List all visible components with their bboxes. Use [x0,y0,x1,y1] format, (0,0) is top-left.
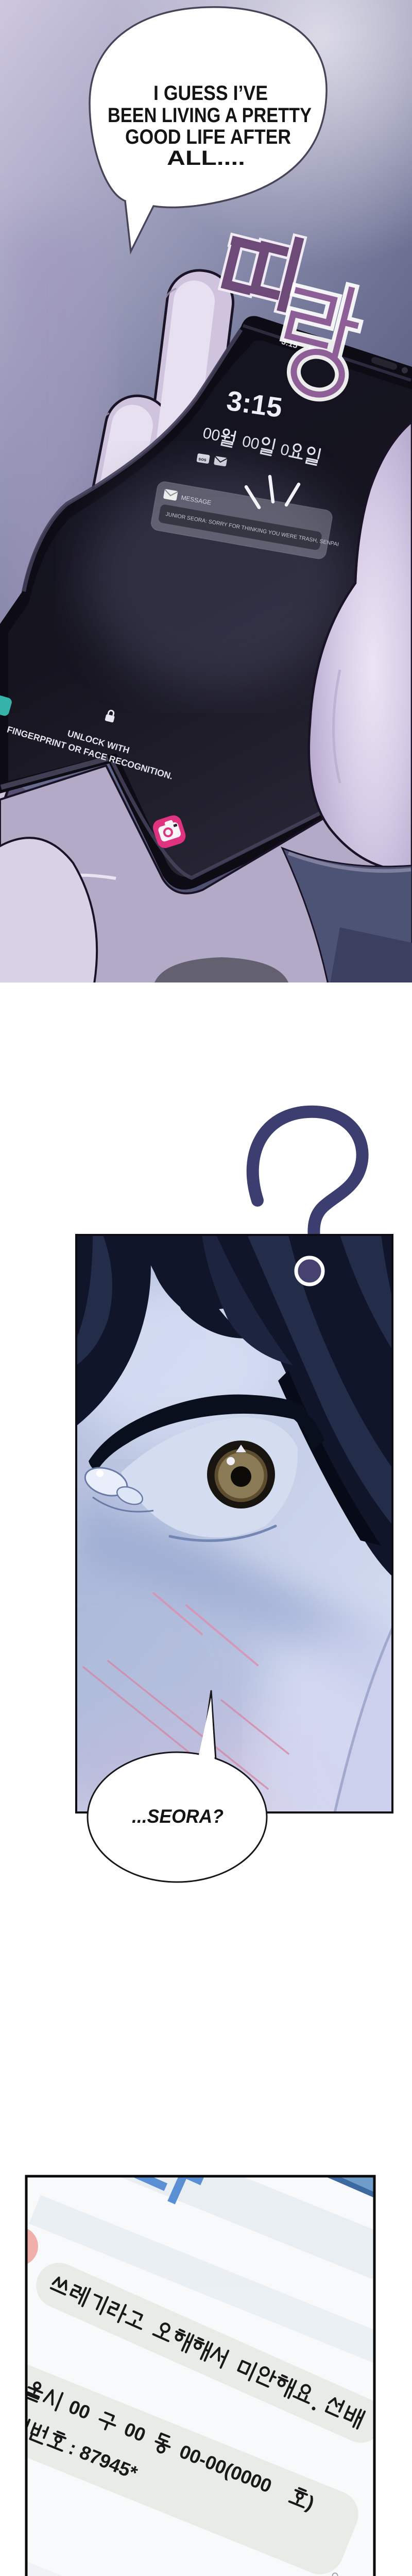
svg-text:...SEORA?: ...SEORA? [132,1806,224,1827]
svg-text:00: 00 [241,433,261,453]
svg-text:00: 00 [201,425,222,445]
svg-text:I GUESS I’VE: I GUESS I’VE [153,82,268,105]
svg-text:GOOD LIFE AFTER: GOOD LIFE AFTER [125,126,291,148]
svg-text:ALL....: ALL.... [167,147,245,170]
svg-text:BEEN LIVING A PRETTY: BEEN LIVING A PRETTY [108,104,312,127]
